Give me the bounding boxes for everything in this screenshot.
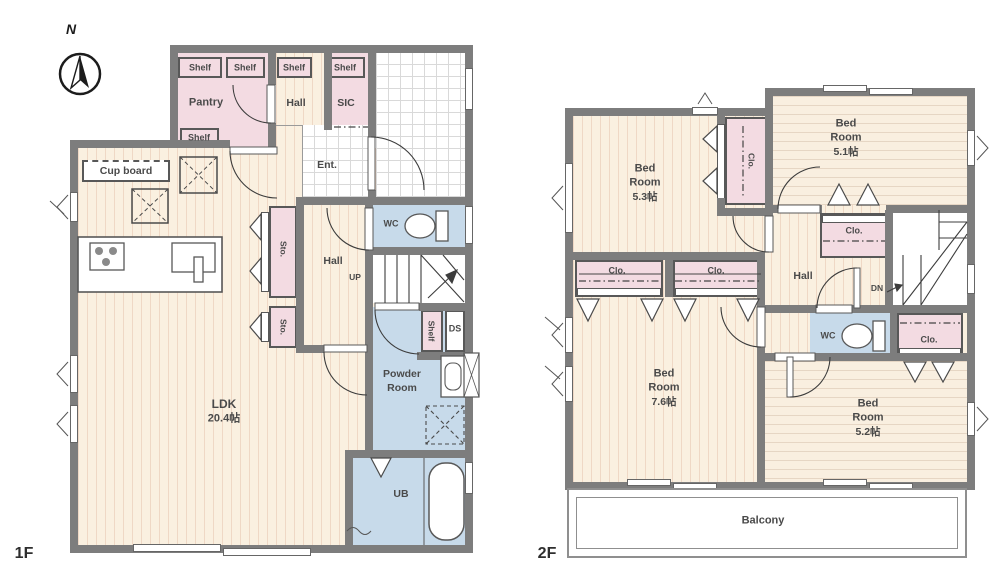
bed76-label2: Room (648, 383, 679, 394)
storage-label: Sto. (279, 241, 288, 257)
bed76-label: Bed (654, 369, 675, 380)
powder-room-label: Powder (383, 369, 421, 380)
floor1-tag: 1F (15, 546, 34, 562)
bed51-size: 5.1帖 (833, 147, 858, 158)
up-label: UP (349, 273, 361, 282)
hall-upper-label: Hall (286, 98, 305, 109)
powder-room-label2: Room (387, 383, 417, 394)
bed53-label2: Room (629, 178, 660, 189)
cupboard-label: Cup board (100, 166, 153, 177)
floor2-tag: 2F (538, 546, 557, 562)
closet-label: Clo. (609, 267, 626, 276)
ds-label: DS (449, 325, 462, 334)
hall-2f-label: Hall (793, 271, 812, 282)
door-leaves (230, 85, 860, 397)
kitchen-counter (78, 237, 222, 292)
powder-sink (441, 356, 465, 397)
bed51-label: Bed (836, 119, 857, 130)
washer-space (426, 406, 464, 444)
storage-label: Sto. (279, 319, 288, 335)
shelf-label: Shelf (334, 64, 356, 73)
dn-label: DN (871, 284, 883, 293)
hall-center-label: Hall (323, 256, 342, 267)
shelf-label: Shelf (188, 134, 210, 143)
bathtub (347, 458, 464, 545)
entrance-label: Ent. (317, 160, 337, 171)
closet-label: Clo. (921, 336, 938, 345)
bed53-size: 5.3帖 (632, 192, 657, 203)
wc-1f-label: WC (384, 220, 399, 229)
plan-overlay (0, 0, 1000, 580)
closet-label: Clo. (747, 153, 756, 169)
shelf-label: Shelf (283, 64, 305, 73)
wc-2f-label: WC (821, 332, 836, 341)
floorplan-canvas: N Shelf Shelf Shelf Shelf Shelf Pantry H… (0, 0, 1000, 580)
stairs-1f (385, 255, 464, 303)
sic-label: SIC (337, 98, 355, 109)
ub-label: UB (393, 489, 408, 500)
shelf-label: Shelf (234, 64, 256, 73)
pantry-label: Pantry (189, 98, 223, 109)
bed53-label: Bed (635, 164, 656, 175)
bed52-size: 5.2帖 (855, 427, 880, 438)
shuttered-opening (464, 353, 479, 397)
stairs-2f (887, 210, 967, 305)
compass-icon (60, 54, 100, 94)
balcony-label: Balcony (742, 516, 785, 527)
toilet-2f (842, 321, 885, 351)
bed52-label: Bed (858, 399, 879, 410)
ldk-label: LDK (212, 398, 237, 410)
shelf-tall-label: Shelf (427, 321, 436, 342)
bed76-size: 7.6帖 (651, 397, 676, 408)
closet-label: Clo. (708, 267, 725, 276)
closet-label: Clo. (846, 227, 863, 236)
compass-n-label: N (66, 22, 76, 36)
bed52-label2: Room (852, 413, 883, 424)
bed51-label2: Room (830, 133, 861, 144)
folding-door-triangles (250, 126, 954, 477)
shelf-label: Shelf (189, 64, 211, 73)
ldk-size-label: 20.4帖 (208, 414, 240, 425)
toilet-1f (405, 211, 448, 241)
